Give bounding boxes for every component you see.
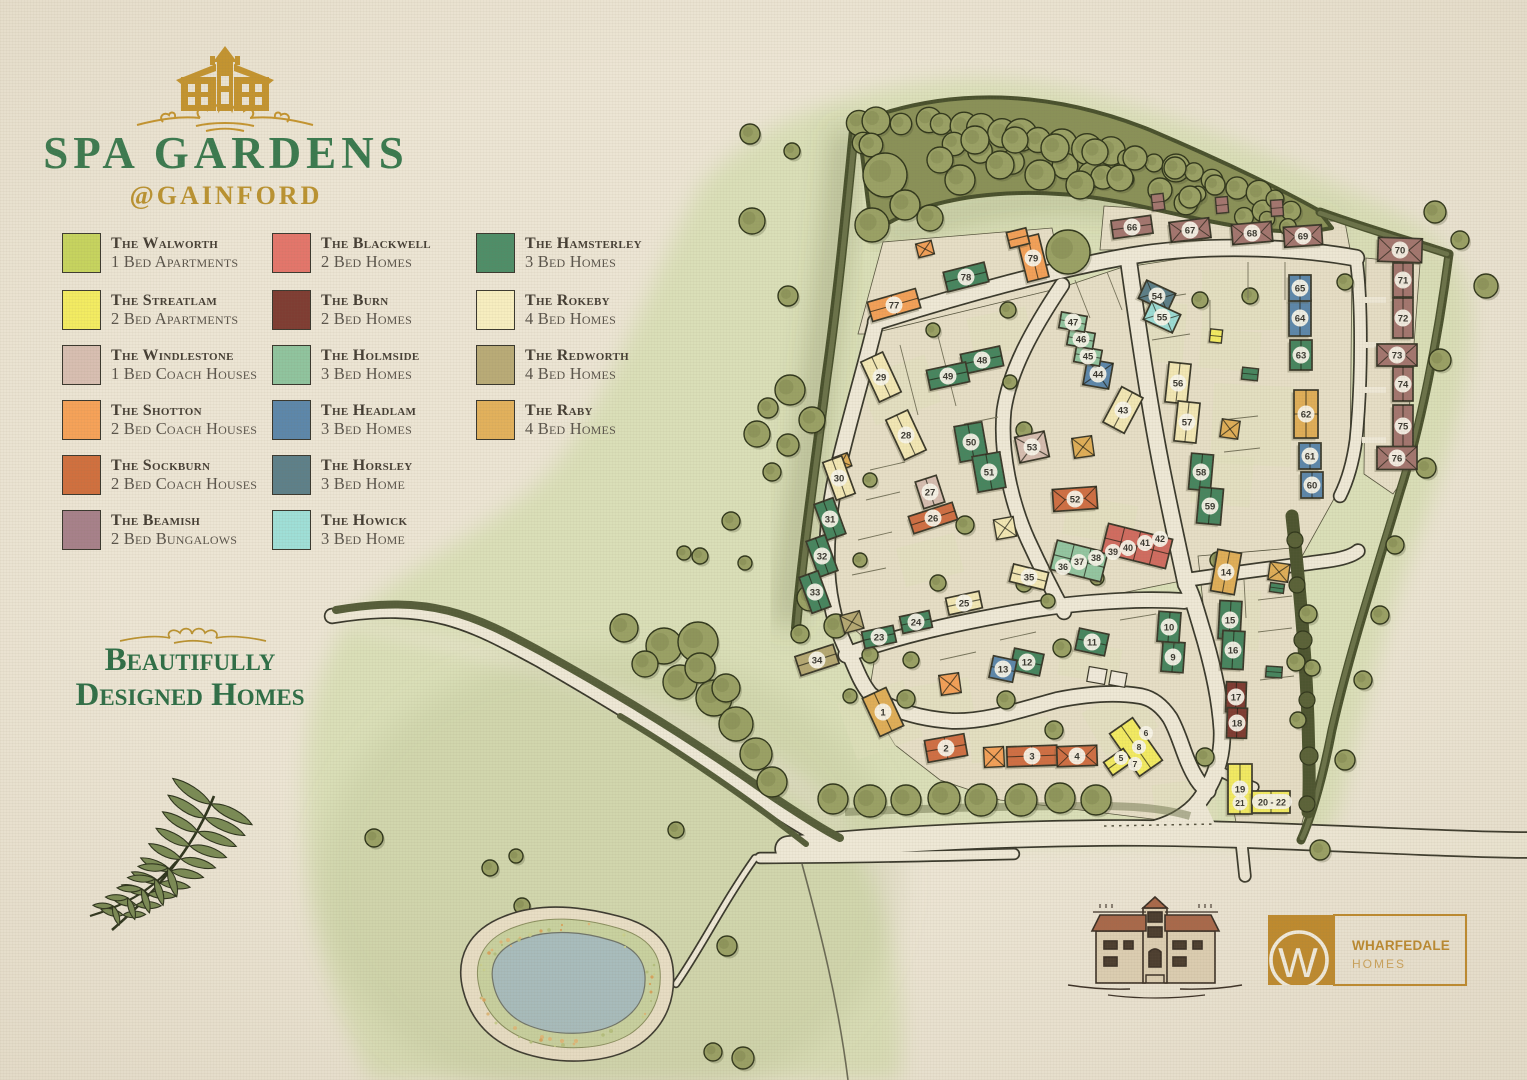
svg-text:23: 23	[874, 633, 885, 644]
svg-text:4: 4	[1074, 752, 1080, 763]
svg-text:52: 52	[1070, 495, 1081, 506]
svg-text:9: 9	[1170, 653, 1175, 664]
svg-text:21: 21	[1235, 798, 1245, 808]
svg-text:43: 43	[1118, 406, 1129, 417]
svg-text:HOMES: HOMES	[1352, 957, 1406, 971]
svg-text:5: 5	[1119, 753, 1124, 763]
svg-text:13: 13	[998, 665, 1009, 676]
svg-text:74: 74	[1398, 380, 1409, 391]
svg-text:55: 55	[1157, 313, 1168, 324]
svg-text:6: 6	[1144, 728, 1149, 738]
svg-text:65: 65	[1295, 284, 1306, 295]
svg-text:73: 73	[1392, 351, 1403, 362]
svg-text:49: 49	[943, 372, 954, 383]
svg-text:44: 44	[1093, 370, 1104, 381]
svg-text:57: 57	[1182, 418, 1193, 429]
svg-text:32: 32	[817, 552, 828, 563]
svg-text:70: 70	[1395, 246, 1406, 257]
svg-text:38: 38	[1091, 553, 1101, 563]
svg-text:1: 1	[880, 708, 886, 719]
svg-text:WHARFEDALE: WHARFEDALE	[1352, 938, 1450, 953]
svg-text:51: 51	[984, 468, 995, 479]
svg-text:64: 64	[1295, 314, 1306, 325]
svg-text:17: 17	[1231, 693, 1242, 704]
svg-text:11: 11	[1087, 638, 1098, 649]
svg-text:68: 68	[1247, 229, 1258, 240]
svg-text:W: W	[1278, 939, 1318, 986]
svg-text:29: 29	[876, 373, 887, 384]
svg-text:10: 10	[1164, 623, 1175, 634]
svg-text:3: 3	[1029, 752, 1034, 763]
svg-text:34: 34	[812, 656, 823, 667]
svg-text:77: 77	[889, 301, 900, 312]
svg-text:15: 15	[1225, 616, 1236, 627]
svg-text:59: 59	[1205, 502, 1216, 513]
svg-text:12: 12	[1022, 658, 1033, 669]
svg-text:67: 67	[1185, 226, 1196, 237]
svg-text:79: 79	[1028, 254, 1039, 265]
svg-text:53: 53	[1027, 443, 1038, 454]
svg-text:18: 18	[1232, 719, 1243, 730]
svg-text:69: 69	[1298, 232, 1309, 243]
svg-text:39: 39	[1108, 547, 1118, 557]
svg-text:72: 72	[1398, 314, 1409, 325]
svg-text:41: 41	[1140, 538, 1150, 548]
svg-text:20 - 22: 20 - 22	[1258, 798, 1286, 808]
svg-text:71: 71	[1398, 276, 1409, 287]
svg-text:19: 19	[1235, 785, 1246, 796]
svg-text:66: 66	[1127, 223, 1138, 234]
svg-text:25: 25	[959, 599, 970, 610]
svg-text:2: 2	[943, 744, 948, 755]
svg-text:40: 40	[1123, 543, 1133, 553]
svg-text:28: 28	[901, 431, 912, 442]
svg-text:35: 35	[1024, 573, 1035, 584]
svg-text:24: 24	[911, 618, 922, 629]
svg-text:14: 14	[1221, 568, 1232, 579]
svg-text:31: 31	[825, 515, 836, 526]
svg-text:30: 30	[834, 474, 845, 485]
svg-text:56: 56	[1173, 379, 1184, 390]
svg-text:58: 58	[1196, 468, 1207, 479]
svg-text:54: 54	[1152, 292, 1163, 303]
svg-text:27: 27	[925, 488, 936, 499]
svg-text:26: 26	[928, 514, 939, 525]
svg-text:50: 50	[966, 438, 977, 449]
svg-text:62: 62	[1301, 410, 1312, 421]
svg-text:42: 42	[1155, 534, 1165, 544]
svg-text:47: 47	[1068, 318, 1079, 329]
svg-text:48: 48	[977, 356, 988, 367]
svg-text:63: 63	[1296, 351, 1307, 362]
svg-text:36: 36	[1058, 562, 1068, 572]
svg-text:16: 16	[1228, 646, 1239, 657]
svg-text:46: 46	[1076, 335, 1087, 346]
svg-text:8: 8	[1137, 742, 1142, 752]
svg-text:78: 78	[961, 273, 972, 284]
svg-text:76: 76	[1392, 454, 1403, 465]
svg-text:37: 37	[1074, 557, 1084, 567]
svg-text:7: 7	[1133, 759, 1138, 769]
svg-text:60: 60	[1307, 481, 1318, 492]
svg-text:33: 33	[810, 588, 821, 599]
svg-text:45: 45	[1083, 352, 1094, 363]
svg-text:61: 61	[1305, 452, 1316, 463]
svg-text:75: 75	[1398, 422, 1409, 433]
